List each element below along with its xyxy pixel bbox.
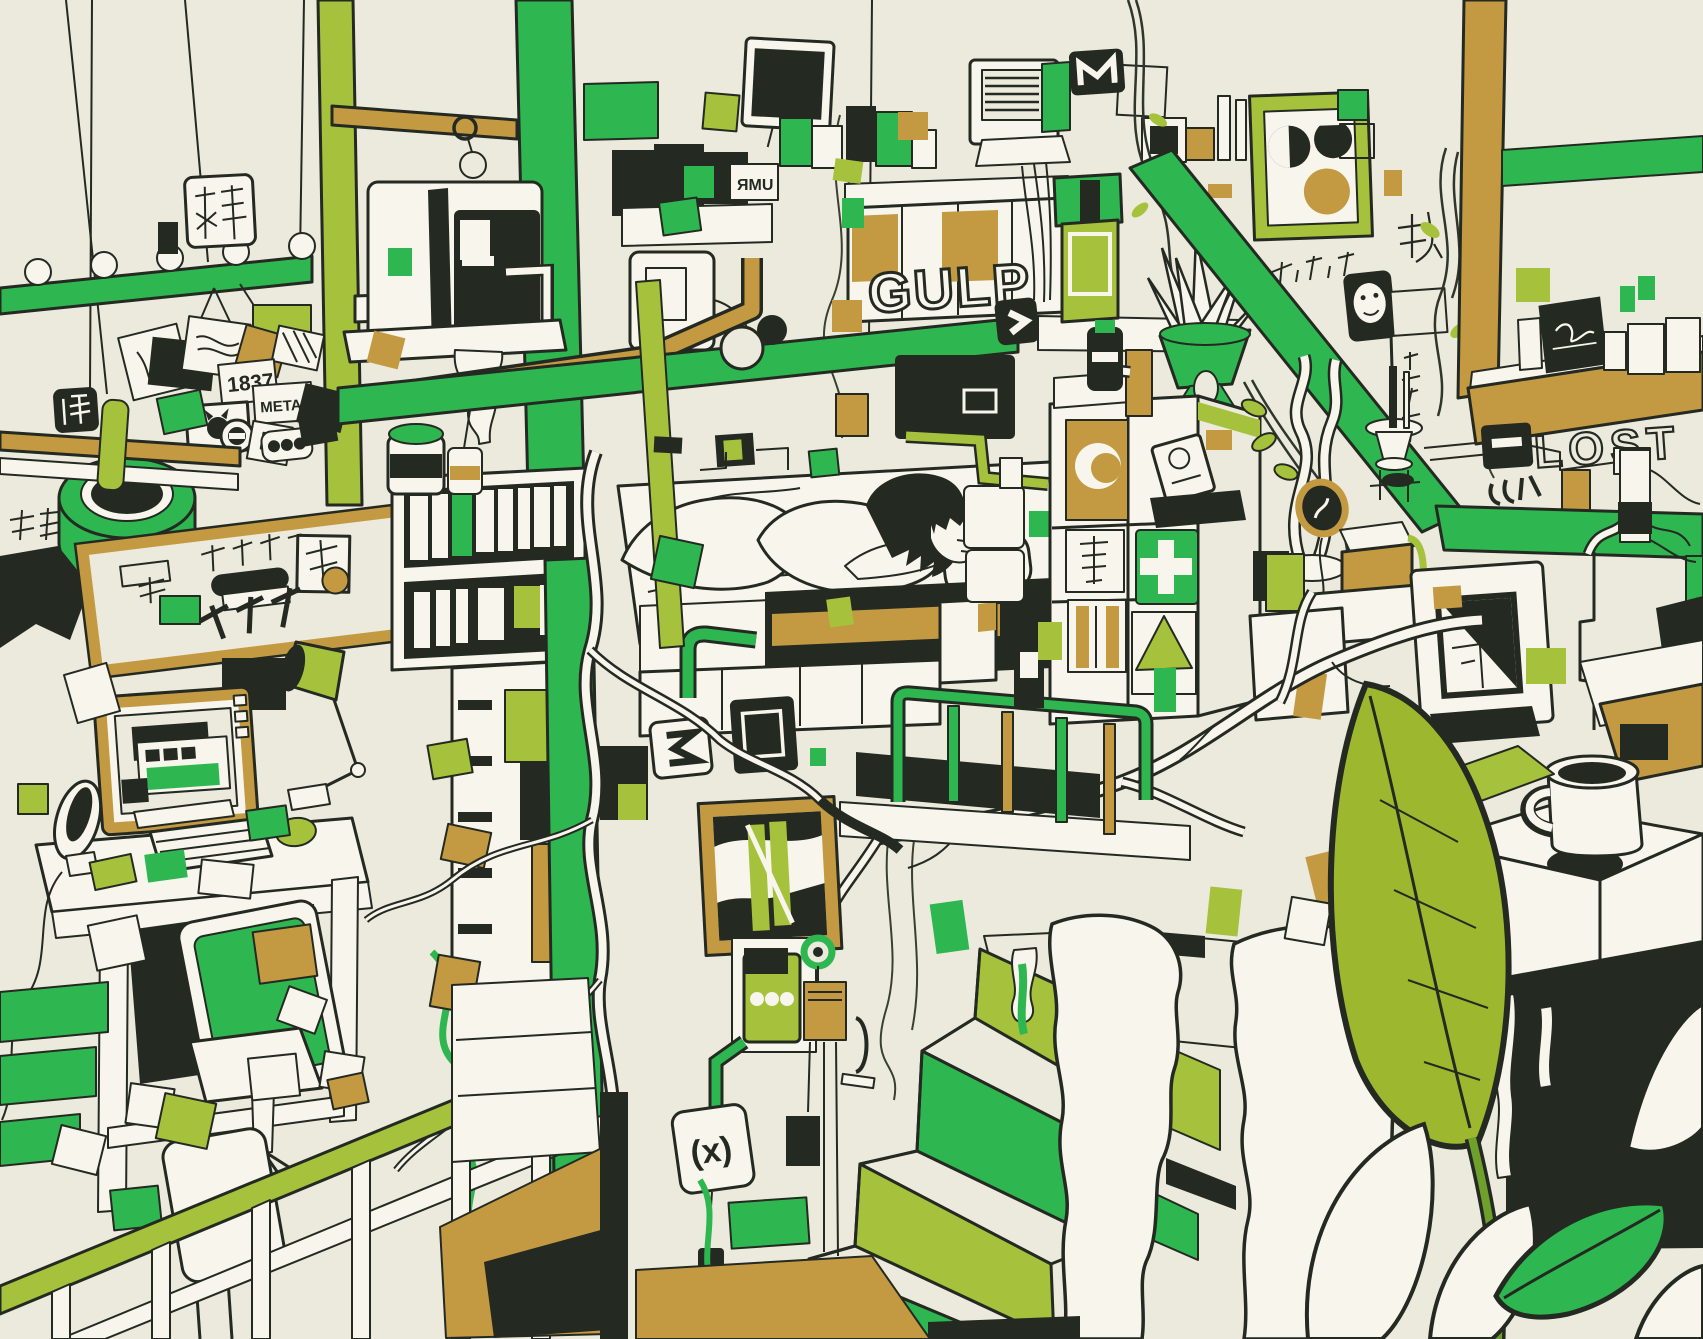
- svg-text:LOST: LOST: [1532, 416, 1682, 478]
- svg-text:ЯMU: ЯMU: [737, 177, 773, 194]
- svg-text:(x): (x): [688, 1129, 734, 1172]
